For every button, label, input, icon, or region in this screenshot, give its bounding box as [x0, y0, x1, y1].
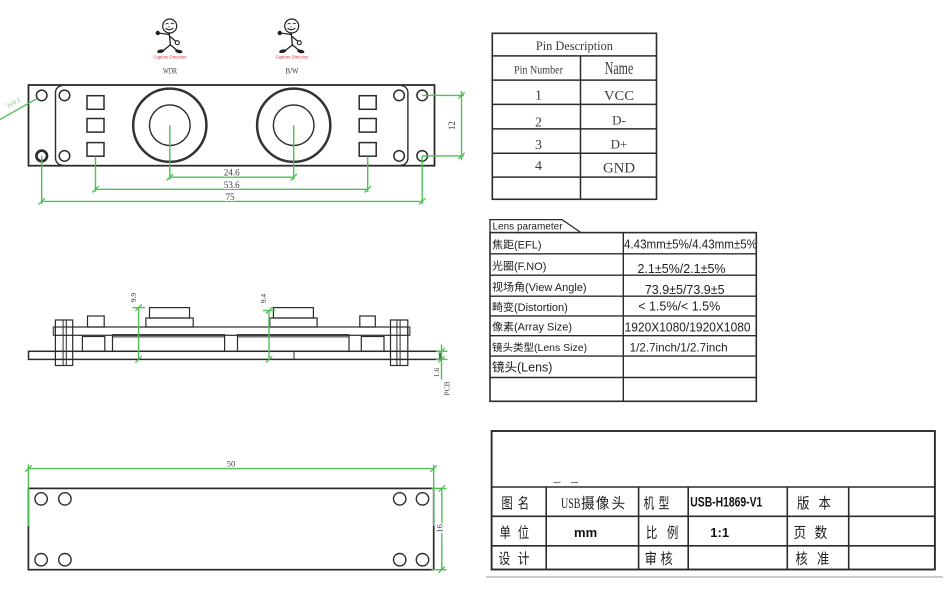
svg-text:24.6: 24.6: [224, 168, 240, 178]
svg-text:(Lens Size): (Lens Size): [534, 342, 587, 354]
svg-text:(Distortion): (Distortion): [514, 302, 568, 314]
svg-text:9.9: 9.9: [129, 293, 138, 303]
svg-text:< 1.5%/< 1.5%: < 1.5%/< 1.5%: [638, 299, 720, 313]
svg-text:USB-H1869-V1: USB-H1869-V1: [690, 495, 762, 510]
svg-text:1.6: 1.6: [432, 368, 441, 378]
svg-text:2.1±5%/2.1±5%: 2.1±5%/2.1±5%: [637, 262, 725, 276]
svg-text:4: 4: [535, 159, 542, 174]
svg-text:D-: D-: [612, 113, 626, 128]
svg-text:1:1: 1:1: [710, 525, 729, 540]
svg-text:WDR: WDR: [163, 66, 177, 76]
svg-text:12: 12: [447, 121, 457, 130]
svg-text:75: 75: [226, 192, 236, 202]
svg-text:D+: D+: [611, 137, 628, 152]
svg-text:(EFL): (EFL): [514, 240, 542, 252]
svg-text:GND: GND: [603, 161, 635, 177]
svg-text:1/2.7inch/1/2.7inch: 1/2.7inch/1/2.7inch: [630, 340, 728, 354]
svg-text:Pin Number: Pin Number: [514, 65, 563, 77]
svg-text:2: 2: [535, 116, 542, 131]
svg-text:(F.NO): (F.NO): [514, 261, 546, 273]
svg-text:Pin Description: Pin Description: [536, 39, 614, 53]
svg-text:1920X1080/1920X1080: 1920X1080/1920X1080: [625, 321, 751, 335]
svg-text:50: 50: [227, 458, 236, 468]
svg-text:53.6: 53.6: [224, 180, 240, 190]
svg-text:Lens parameter: Lens parameter: [493, 222, 564, 233]
svg-text:(Array Size): (Array Size): [514, 322, 572, 334]
svg-text:1: 1: [535, 89, 542, 104]
svg-text:VCC: VCC: [604, 88, 634, 103]
svg-text:USB: USB: [561, 496, 581, 512]
svg-text:Name: Name: [605, 58, 634, 78]
svg-text:4.43mm±5%/4.43mm±5%: 4.43mm±5%/4.43mm±5%: [624, 237, 757, 252]
svg-text:(Lens): (Lens): [517, 361, 552, 375]
svg-text:B/W: B/W: [286, 66, 300, 76]
svg-text:3: 3: [535, 138, 542, 153]
svg-text:Capture Direction: Capture Direction: [154, 55, 187, 60]
svg-text:73.9±5/73.9±5: 73.9±5/73.9±5: [645, 283, 725, 297]
svg-text:mm: mm: [574, 525, 597, 540]
svg-text:Capture Direction: Capture Direction: [276, 55, 309, 60]
svg-text:(View Angle): (View Angle): [525, 282, 587, 294]
svg-text:9.4: 9.4: [259, 294, 268, 304]
svg-text:16: 16: [434, 524, 444, 533]
svg-text:PCB: PCB: [442, 381, 451, 395]
